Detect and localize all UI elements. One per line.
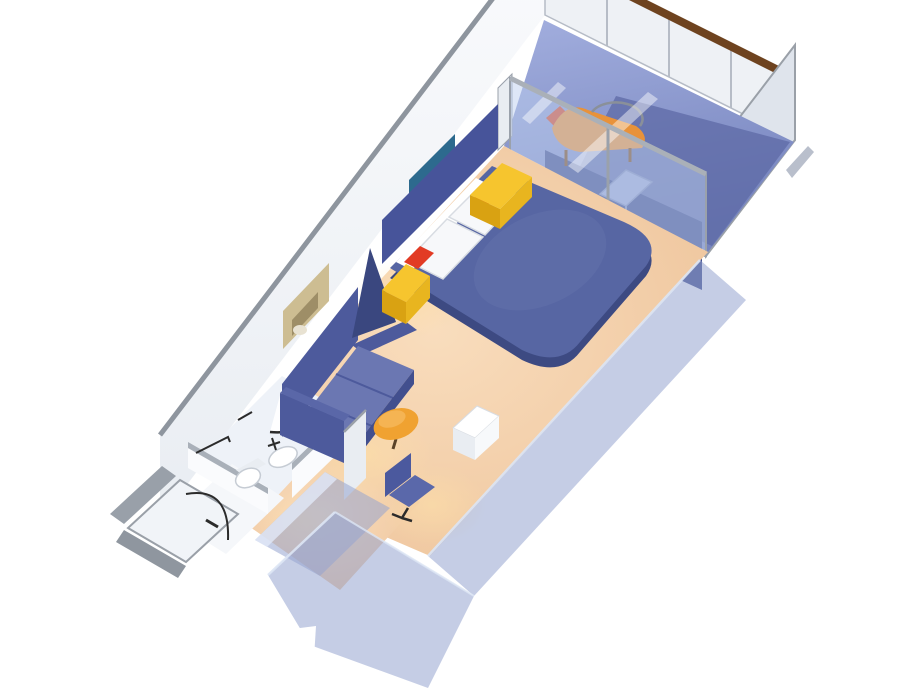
floorplan-canvas	[0, 0, 900, 700]
closet-white-notch	[282, 626, 316, 662]
stateroom-floorplan-render	[0, 0, 900, 700]
artwork-tan-detail	[293, 325, 307, 335]
